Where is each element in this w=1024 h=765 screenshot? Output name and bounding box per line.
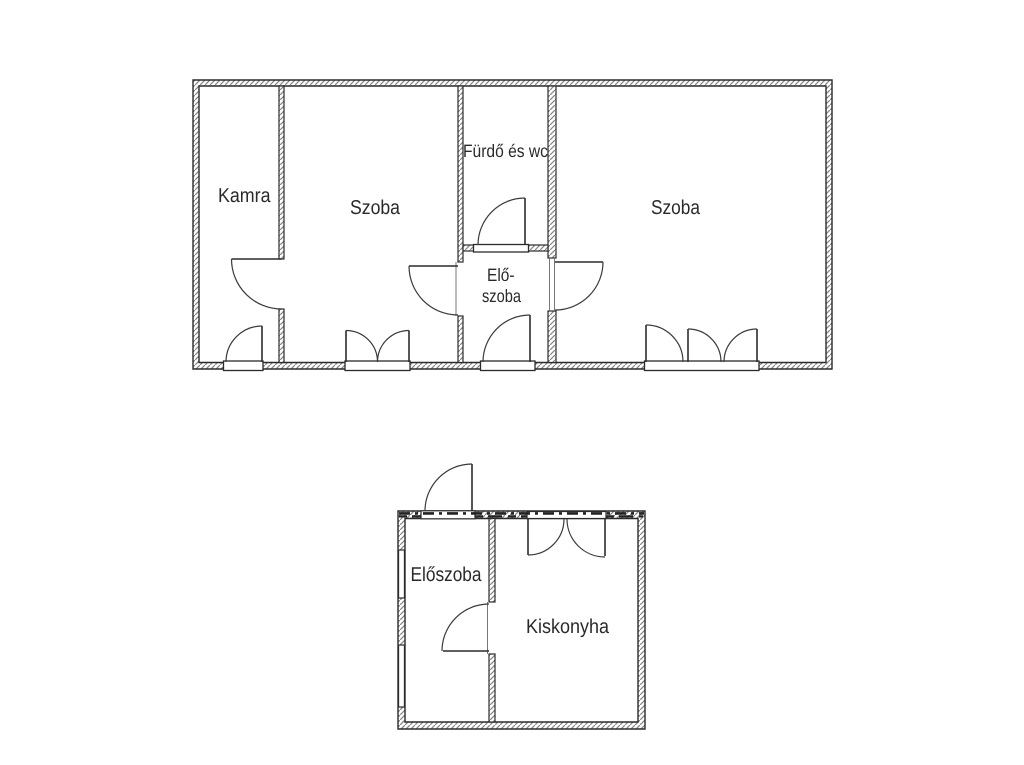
- svg-text:Szoba: Szoba: [350, 197, 401, 219]
- svg-text:Kamra: Kamra: [218, 185, 271, 207]
- svg-text:Elő-: Elő-: [487, 265, 515, 285]
- svg-text:Szoba: Szoba: [651, 197, 701, 219]
- svg-text:szoba: szoba: [482, 286, 522, 306]
- svg-text:Kiskonyha: Kiskonyha: [526, 616, 610, 638]
- svg-text:Előszoba: Előszoba: [411, 564, 483, 586]
- svg-text:Fürdő és wc: Fürdő és wc: [463, 141, 548, 161]
